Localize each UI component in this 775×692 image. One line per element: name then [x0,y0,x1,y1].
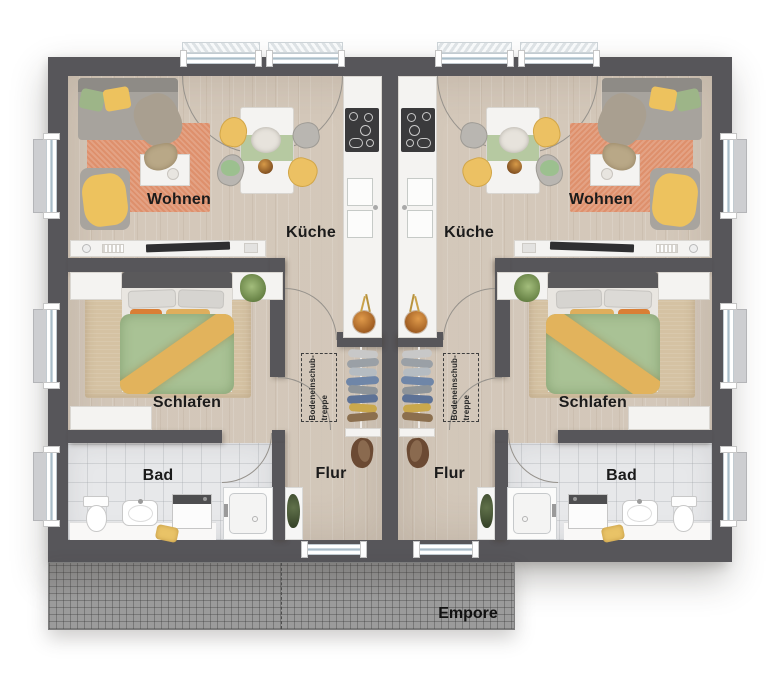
flower-vase [405,311,427,333]
flower-bouquet [499,127,529,153]
faucet [373,205,378,210]
dining-table [240,107,294,194]
hall-plant [480,494,493,528]
decor-roll [689,244,698,253]
armchair [650,168,700,230]
wardrobe-left [658,272,710,300]
terrace-window-1 [520,53,598,64]
pillow [604,289,653,309]
wall-living-bedroom [68,258,283,272]
roof-hatch-2 [268,42,343,53]
pillow [178,289,225,309]
bed-throw [120,314,234,394]
terrace-window-1 [182,53,260,64]
window-hall [303,544,365,555]
roof-hatch-1 [182,42,260,53]
duvet [546,314,660,394]
pillow [556,289,603,309]
wardrobe-left [70,272,122,300]
decor-roll [82,244,91,253]
shoe-shelf [399,428,435,437]
kitchen-sink-1 [347,178,373,206]
sofa-cushion-green [674,88,702,113]
window-bedroom [46,305,57,387]
room-label-hall: Flur [276,465,386,485]
wall-bath-a [68,430,222,443]
room-label-bath: Bad [567,467,677,487]
bed [548,272,658,392]
sofa-cushion-yellow [102,86,131,112]
room-label-living: Wohnen [546,191,656,211]
pillow [128,289,177,309]
roof-hatch-2 [437,42,512,53]
window-bath [46,448,57,525]
cooktop [345,108,379,152]
roof-hatch-1 [520,42,598,53]
towel-on-chair [540,160,559,176]
kitchen-sink-1 [407,178,433,206]
speaker [244,243,258,253]
wall-living-bedroom [497,258,712,272]
apartment-left: Bodeneinschub- treppe Wohnen Küche Schla… [30,38,390,562]
bath-sink [622,500,658,526]
window-sill-bedroom [732,309,747,383]
toilet [86,505,107,532]
loft-ladder-label: Bodeneinschub- treppe [307,355,331,420]
flower-bouquet [251,127,281,153]
shoe-shelf [345,428,381,437]
shower [223,487,273,540]
plant [240,274,266,302]
room-label-bedroom: Schlafen [132,394,242,414]
sofa-cushion-green [78,88,106,113]
hall-plant [287,494,300,528]
window-sill-bath [732,452,747,521]
washing-machine [172,494,212,529]
loft-ladder-label: Bodeneinschub- treppe [449,355,473,420]
window-bedroom [723,305,734,387]
room-label-living: Wohnen [124,191,234,211]
bed [122,272,232,392]
wall-bath-b [272,430,285,443]
room-label-bath: Bad [103,467,213,487]
book-stack [102,244,124,253]
bed-throw [546,314,660,394]
apartment-right: Bodeneinschub- treppe Wohnen Küche Schla… [390,38,750,562]
terrace-window-2 [437,53,512,64]
room-label-kitchen: Küche [414,224,524,244]
room-label-bedroom: Schlafen [538,394,648,414]
window-living [723,135,734,217]
armchair-blanket [650,172,700,229]
empore-divider-line [281,563,284,629]
wall-party [390,57,398,562]
window-hall [415,544,477,555]
room-label-kitchen: Küche [256,224,366,244]
armchair-blanket [80,172,130,229]
duvet [120,314,234,394]
sofa-cushion-yellow [648,86,677,112]
armchair [80,168,130,230]
empore-label: Empore [418,605,518,623]
floor-plan: Bodeneinschub- treppe Wohnen Küche Schla… [0,0,775,692]
decor-bowl [507,159,522,174]
wall-bath-a [558,430,712,443]
shower [507,487,557,540]
room-label-hall: Flur [394,465,504,485]
window-bath [723,448,734,525]
hanging-clothes [402,394,433,404]
cooktop [401,108,435,152]
wall-bath-b [495,430,508,443]
shower-faucet [552,504,556,517]
wall-bath-hall [272,443,285,540]
towel-on-chair [221,160,240,176]
faucet [402,205,407,210]
dining-table [486,107,540,194]
plant [514,274,540,302]
sofa [78,78,178,140]
sofa [602,78,702,140]
loft-ladder-area: Bodeneinschub- treppe [301,353,337,422]
bath-sink [122,500,158,526]
terrace-window-2 [268,53,343,64]
book-stack [656,244,678,253]
washing-machine [568,494,608,529]
flower-vase [353,311,375,333]
toilet [673,505,694,532]
window-sill-living [732,139,747,213]
wall-party [382,57,390,562]
window-living [46,135,57,217]
speaker [522,243,536,253]
shower-faucet [224,504,228,517]
loft-ladder-area: Bodeneinschub- treppe [443,353,479,422]
decor-bowl [258,159,273,174]
